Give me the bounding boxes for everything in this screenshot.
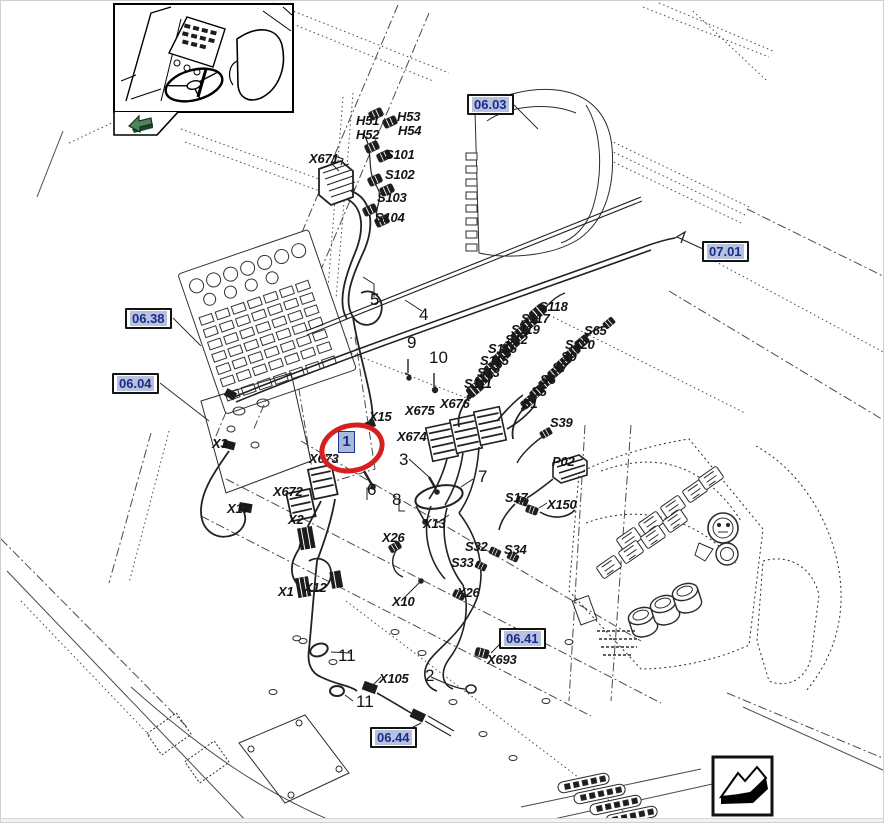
item-number-7: 7 xyxy=(478,467,487,487)
item-number-8: 8 xyxy=(392,490,401,510)
connector-label-S33: S33 xyxy=(451,555,474,570)
page-edge xyxy=(1,818,884,823)
connector-label-S103: S103 xyxy=(377,190,407,205)
ref-box-06.04[interactable]: 06.04 xyxy=(112,373,159,394)
ref-box-06.41[interactable]: 06.41 xyxy=(499,628,546,649)
connector-label-S102: S102 xyxy=(385,167,415,182)
connector-label-S32: S32 xyxy=(465,539,488,554)
connector-label-X12: X12 xyxy=(304,580,327,595)
ref-box-07.01[interactable]: 07.01 xyxy=(702,241,749,262)
connector-label-X17: X17 xyxy=(227,501,250,516)
item-number-9: 9 xyxy=(407,333,416,353)
item-number-5: 5 xyxy=(370,290,379,310)
connector-label-S1: S1 xyxy=(522,396,538,411)
connector-label-S65: S65 xyxy=(584,323,607,338)
connector-label-X674: X674 xyxy=(397,429,427,444)
ref-box-06.03[interactable]: 06.03 xyxy=(467,94,514,115)
ref-box-label: 06.41 xyxy=(504,631,541,646)
connector-label-P02: P02 xyxy=(552,454,575,469)
ref-box-label: 06.03 xyxy=(472,97,509,112)
connector-label-X693: X693 xyxy=(487,652,517,667)
item-number-10: 10 xyxy=(429,348,448,368)
connector-label-X26: X26 xyxy=(382,530,405,545)
connector-label-H52: H52 xyxy=(356,127,379,142)
connector-label-S34: S34 xyxy=(504,542,527,557)
connector-label-S111: S111 xyxy=(464,376,492,391)
item-number-3: 3 xyxy=(399,450,408,470)
ref-box-06.38[interactable]: 06.38 xyxy=(125,308,172,329)
connector-label-S17: S17 xyxy=(505,490,528,505)
highlighted-item-number[interactable]: 1 xyxy=(338,431,355,453)
item-number-11: 11 xyxy=(356,692,374,712)
connector-label-X1: X1 xyxy=(278,584,294,599)
diagram-page: H51H53H52H54X671S101S102S103S104S118S117… xyxy=(0,0,884,823)
ref-box-label: 06.38 xyxy=(130,311,167,326)
connector-label-X15: X15 xyxy=(369,409,392,424)
item-number-11: 11 xyxy=(338,646,356,666)
item-number-6: 6 xyxy=(367,480,376,500)
ref-box-label: 07.01 xyxy=(707,244,744,259)
connector-label-X105: X105 xyxy=(379,671,409,686)
connector-label-H53: H53 xyxy=(397,109,420,124)
connector-label-X671: X671 xyxy=(309,151,339,166)
item-number-2: 2 xyxy=(425,666,434,686)
ref-box-label: 06.04 xyxy=(117,376,154,391)
connector-label-X13: X13 xyxy=(423,516,446,531)
connector-label-S104: S104 xyxy=(375,210,405,225)
label-layer: H51H53H52H54X671S101S102S103S104S118S117… xyxy=(1,1,884,823)
connector-label-X150: X150 xyxy=(547,497,577,512)
connector-label-X26: X26 xyxy=(457,585,480,600)
item-number-4: 4 xyxy=(419,305,428,325)
connector-label-H54: H54 xyxy=(398,123,421,138)
connector-label-S39: S39 xyxy=(550,415,573,430)
ref-box-06.44[interactable]: 06.44 xyxy=(370,727,417,748)
ref-box-label: 06.44 xyxy=(375,730,412,745)
connector-label-S101: S101 xyxy=(385,147,415,162)
connector-label-X672: X672 xyxy=(273,484,303,499)
connector-label-X675: X675 xyxy=(405,403,435,418)
connector-label-X10: X10 xyxy=(392,594,415,609)
connector-label-H51: H51 xyxy=(356,113,379,128)
connector-label-X2: X2 xyxy=(288,512,304,527)
connector-label-X676: X676 xyxy=(440,396,470,411)
connector-label-X3: X3 xyxy=(212,436,228,451)
